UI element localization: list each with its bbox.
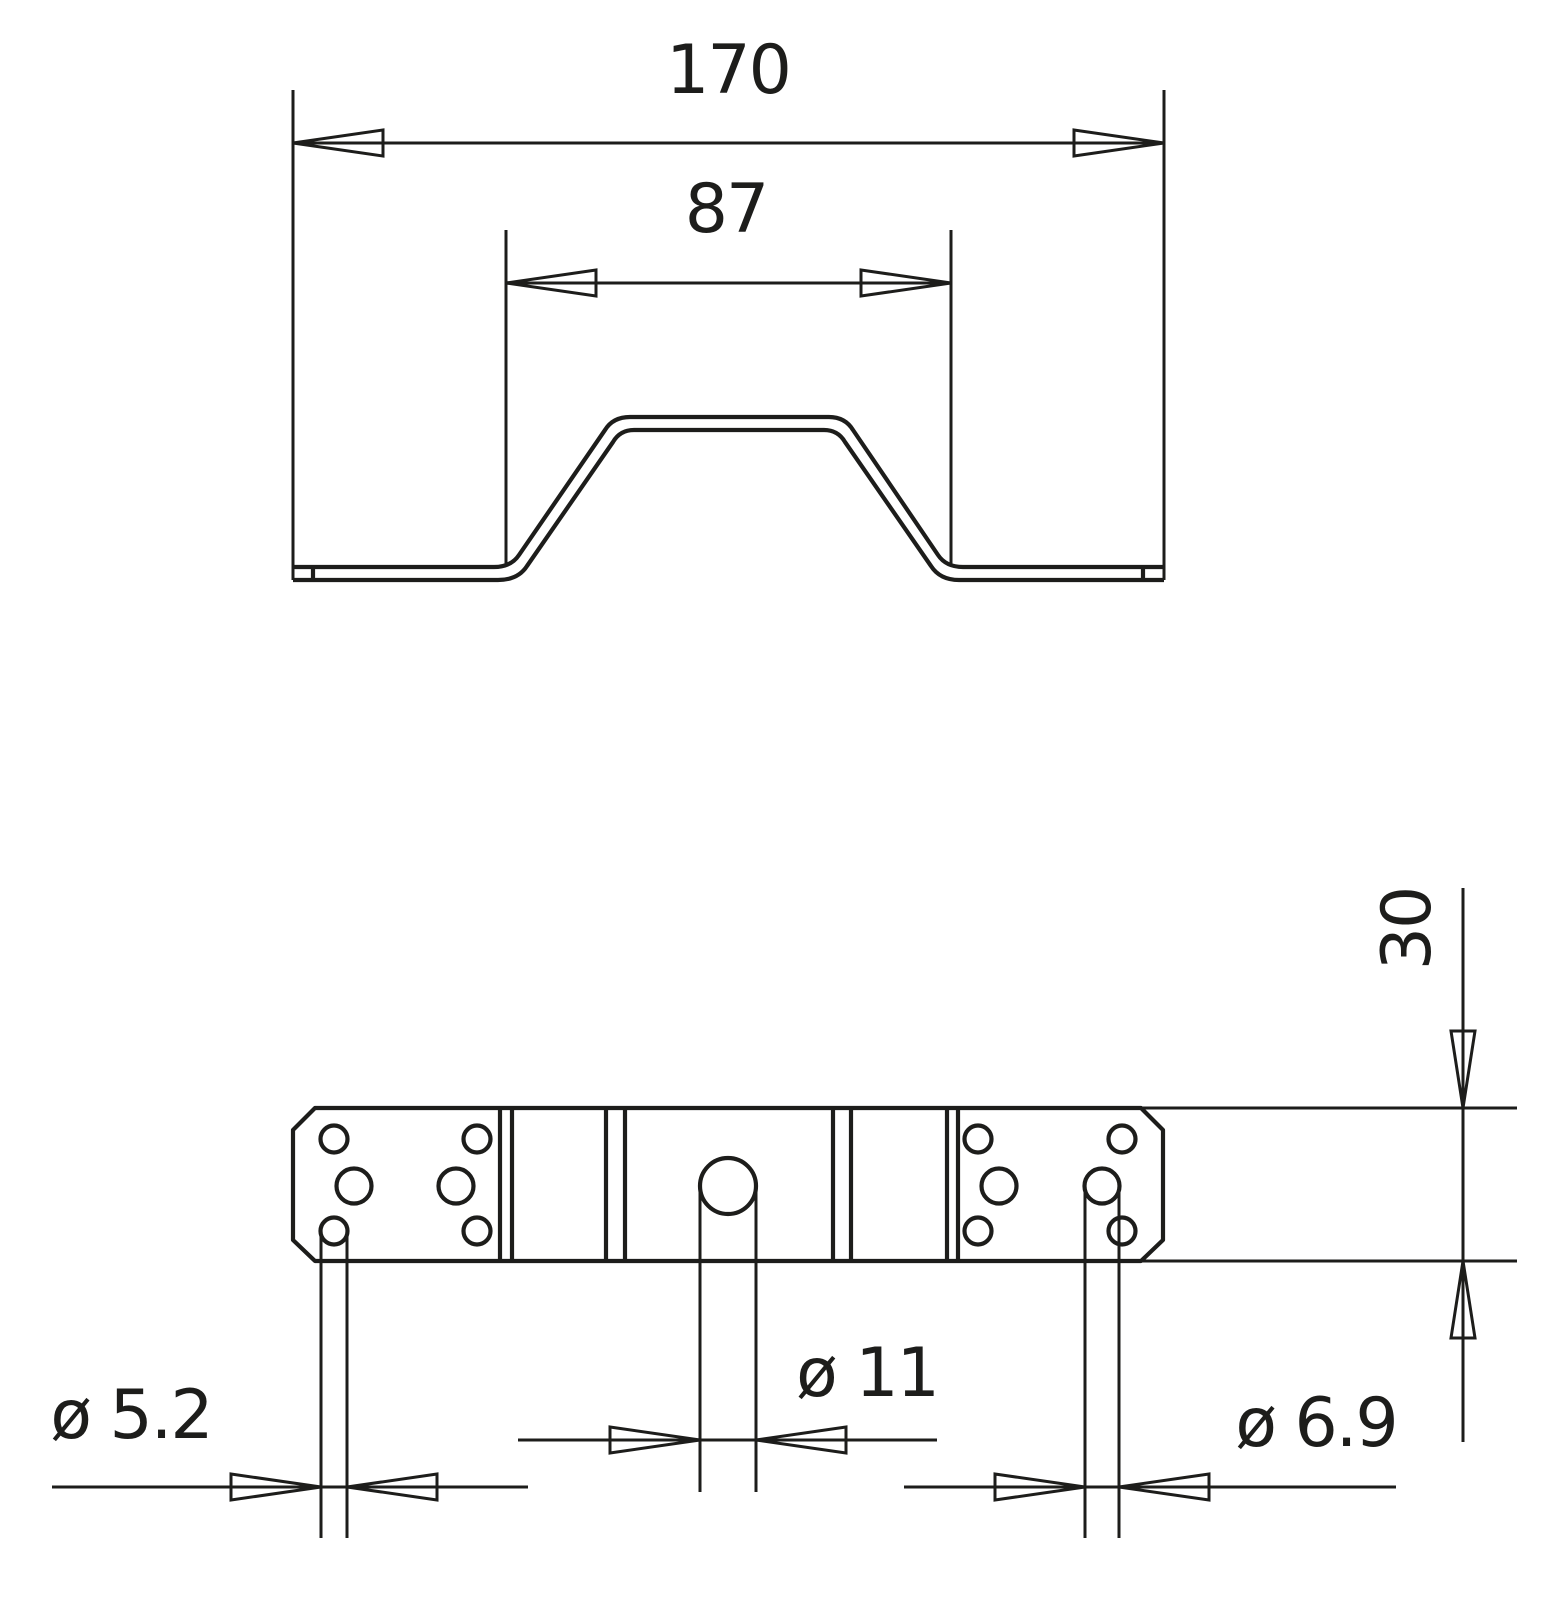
dimension-hole-11-group: ø 11 (518, 1186, 938, 1492)
hole-medium-right-outer (1085, 1169, 1120, 1204)
hole-small-right-bottom-inner (965, 1218, 992, 1245)
dimension-30-group: 30 (1141, 888, 1517, 1442)
hole-medium-left-outer (337, 1169, 372, 1204)
hole-small-left-top-outer (321, 1126, 348, 1153)
hole-small-right-top-inner (965, 1126, 992, 1153)
dimension-label-hole-small: ø 5.2 (50, 1376, 211, 1455)
hole-small-right-top-outer (1109, 1126, 1136, 1153)
bracket-drawing-canvas: 170 87 (0, 0, 1552, 1612)
technical-drawing-page: 170 87 (0, 0, 1552, 1612)
hole-small-left-top-inner (464, 1126, 491, 1153)
hole-medium-right-inner (982, 1169, 1017, 1204)
hole-small-left-bottom-inner (464, 1218, 491, 1245)
dimension-label-87: 87 (685, 170, 768, 249)
front-view-cross-section: 170 87 (293, 31, 1164, 580)
dimension-label-hole-medium: ø 6.9 (1235, 1384, 1396, 1463)
dimension-hole-6-9-group: ø 6.9 (904, 1186, 1397, 1538)
hole-medium-left-inner (439, 1169, 474, 1204)
dimension-label-30: 30 (1368, 888, 1447, 971)
profile-inner-surface (293, 430, 1164, 580)
hole-center (700, 1158, 756, 1214)
plan-view-strip (293, 1108, 1163, 1261)
dimension-hole-5-2-group: ø 5.2 (50, 1231, 528, 1538)
hole-small-right-bottom-outer (1109, 1218, 1136, 1245)
dimension-label-hole-center: ø 11 (796, 1334, 938, 1413)
strip-outline (293, 1108, 1163, 1261)
hole-small-left-bottom-outer (321, 1218, 348, 1245)
profile-outer-surface (293, 417, 1164, 567)
dimension-label-170: 170 (666, 31, 790, 110)
